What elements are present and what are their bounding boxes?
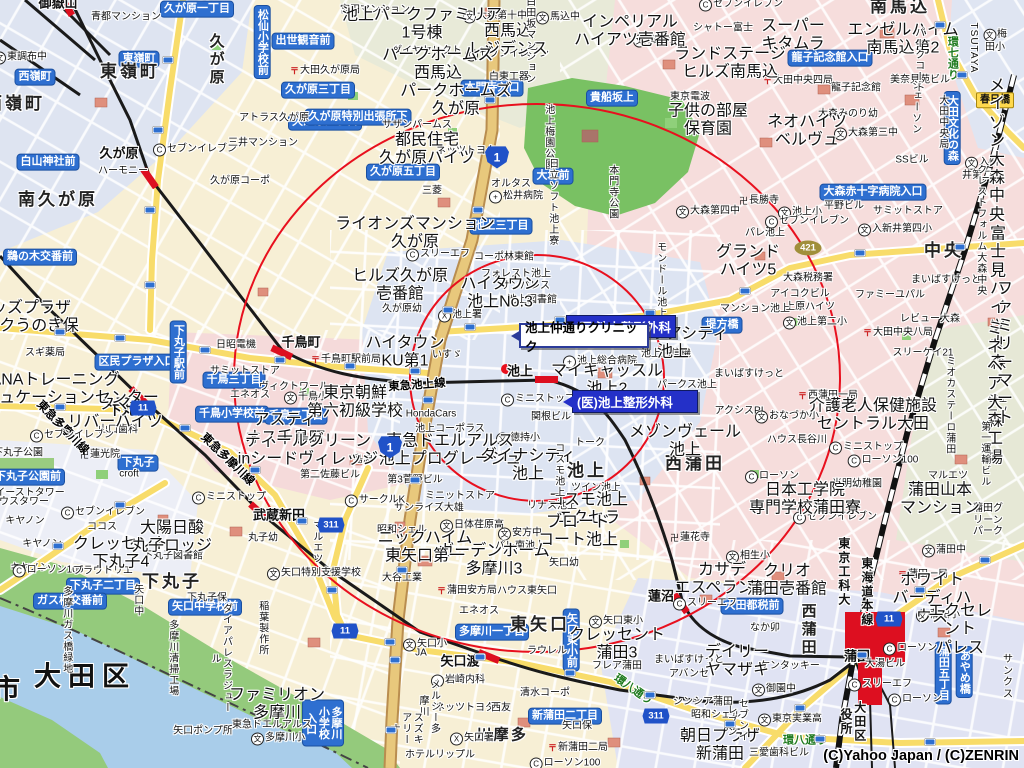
map-canvas[interactable]: 久が原一丁目松仙小学校前出世観音前東嶺町西嶺町久が原三丁目久が原四丁目白山神社前… bbox=[0, 0, 1024, 768]
bus-stop-marker bbox=[55, 329, 66, 336]
callout-c-seikei[interactable]: (医)池上整形外科 bbox=[572, 390, 698, 413]
bus-stop-marker bbox=[153, 127, 164, 134]
bus-stop-marker bbox=[443, 307, 454, 314]
map-base-art bbox=[0, 0, 1024, 768]
bus-stop-marker bbox=[740, 288, 751, 295]
bus-stop-marker bbox=[115, 335, 126, 342]
bus-stop-marker bbox=[145, 207, 156, 214]
bus-stop-marker bbox=[815, 736, 826, 743]
bus-stop-marker bbox=[980, 557, 991, 564]
bus-stop-marker bbox=[565, 670, 576, 677]
bus-stop-marker bbox=[163, 57, 174, 64]
bus-stop-marker bbox=[397, 567, 408, 574]
bus-stop-marker bbox=[423, 397, 434, 404]
callout-pointer-icon bbox=[563, 396, 573, 408]
bus-stop-marker bbox=[410, 368, 421, 375]
callout-pointer-icon bbox=[511, 330, 521, 342]
bus-stop-marker bbox=[465, 324, 476, 331]
bus-stop-marker bbox=[180, 425, 191, 432]
bus-stop-marker bbox=[935, 22, 946, 29]
bus-stop-marker bbox=[145, 282, 156, 289]
bus-stop-marker bbox=[410, 477, 421, 484]
bus-stop-marker bbox=[53, 543, 64, 550]
bus-stop-marker bbox=[297, 518, 308, 525]
bus-stop-marker bbox=[327, 587, 338, 594]
bus-stop-marker bbox=[386, 727, 397, 734]
bus-stop-marker bbox=[855, 250, 866, 257]
bus-stop-marker bbox=[645, 692, 656, 699]
bus-stop-marker bbox=[955, 244, 966, 251]
bus-stop-marker bbox=[345, 363, 356, 370]
bus-stop-marker bbox=[385, 639, 396, 646]
bus-stop-marker bbox=[957, 72, 968, 79]
bus-stop-marker bbox=[250, 467, 261, 474]
bus-stop-marker bbox=[55, 404, 66, 411]
callout-c-clinic[interactable]: 池上仲通りクリニック bbox=[519, 323, 649, 348]
bus-stop-marker bbox=[275, 357, 286, 364]
bus-stop-marker bbox=[390, 657, 401, 664]
bus-stop-marker bbox=[915, 587, 926, 594]
bus-stop-marker bbox=[475, 654, 486, 661]
bus-stop-marker bbox=[857, 652, 868, 659]
bus-stop-marker bbox=[473, 207, 484, 214]
bus-stop-marker bbox=[795, 705, 806, 712]
bus-stop-marker bbox=[925, 739, 936, 746]
bus-stop-marker bbox=[115, 502, 126, 509]
bus-stop-marker bbox=[725, 721, 736, 728]
bus-stop-marker bbox=[485, 97, 496, 104]
bus-stop-marker bbox=[200, 347, 211, 354]
copyright-text: (C)Yahoo Japan / (C)ZENRIN bbox=[823, 748, 1019, 764]
